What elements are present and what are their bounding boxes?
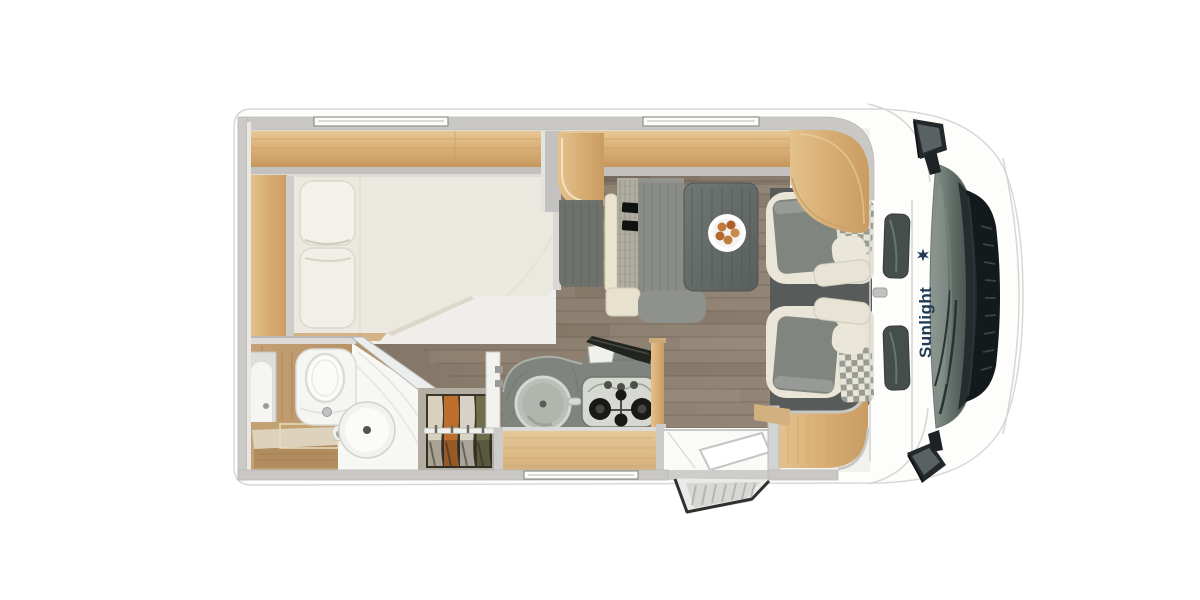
svg-text:Sunlight: Sunlight [916, 287, 935, 358]
